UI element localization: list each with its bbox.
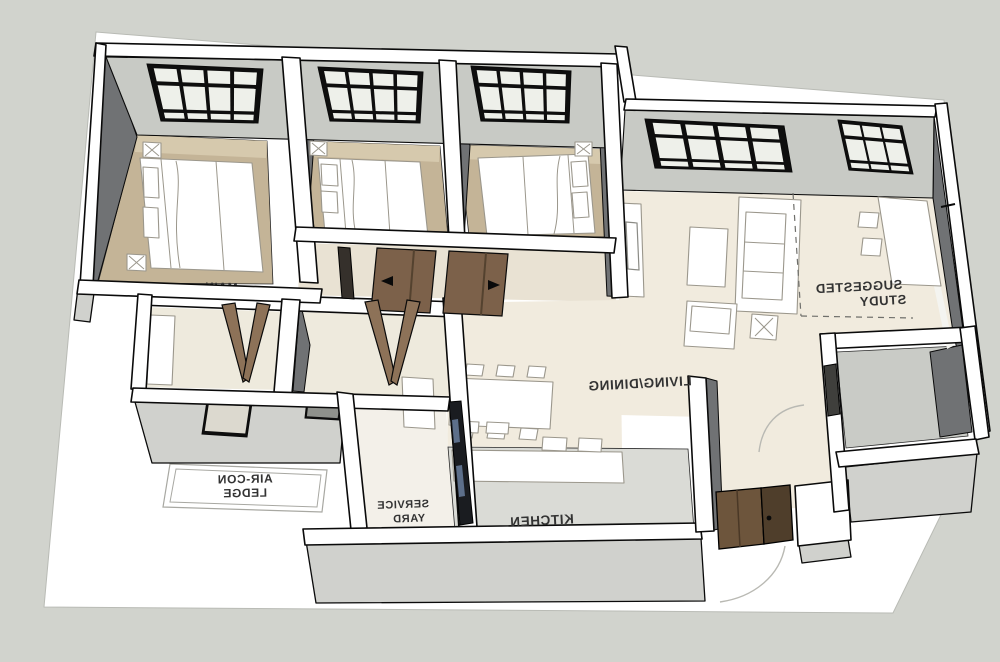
living-window-small-icon bbox=[838, 120, 913, 174]
bath-window-obscured-icon bbox=[202, 401, 252, 437]
bedroom2-window-icon bbox=[318, 67, 423, 123]
bedroom3-door bbox=[443, 251, 508, 316]
tv-icon bbox=[626, 222, 639, 270]
master-bed bbox=[140, 158, 263, 272]
nightstand-icon bbox=[575, 142, 592, 156]
kitchen-south-wall-exterior bbox=[306, 538, 705, 603]
kitchen-counter-module bbox=[486, 422, 509, 434]
nightstand-icon bbox=[143, 142, 161, 158]
study-chair bbox=[861, 238, 882, 256]
coffee-table bbox=[687, 227, 728, 287]
label-aircon-line1: AIR-CON bbox=[217, 472, 273, 487]
study-chair bbox=[858, 212, 879, 228]
floorplan-svg: MAIN SERVICE YARD bbox=[0, 0, 1000, 662]
label-service-yard-line1: SERVICE bbox=[377, 498, 430, 512]
label-aircon-line2: LEDGE bbox=[223, 486, 268, 501]
nightstand-icon bbox=[127, 254, 146, 271]
sofa bbox=[735, 197, 801, 314]
side-table-icon bbox=[750, 314, 778, 340]
kitchen-stool bbox=[542, 437, 567, 451]
living-window-large-icon bbox=[645, 119, 792, 172]
bedroom3-bed bbox=[478, 154, 595, 236]
bedroom3-window-icon bbox=[471, 66, 571, 123]
nightstand-icon bbox=[310, 141, 327, 156]
label-service-yard-line2: YARD bbox=[392, 512, 425, 525]
bedroom2-door bbox=[371, 248, 436, 313]
armchair bbox=[684, 301, 737, 349]
floorplan-3d-render: MAIN SERVICE YARD bbox=[0, 0, 1000, 662]
bedroom2-bed bbox=[318, 158, 428, 236]
label-study-line2: STUDY bbox=[859, 292, 907, 309]
door-handle-icon bbox=[767, 516, 772, 521]
main-entrance-door bbox=[716, 485, 793, 549]
master-bedroom-window-icon bbox=[147, 64, 263, 123]
kitchen-stool bbox=[578, 438, 602, 452]
bath-vanity bbox=[147, 315, 175, 385]
